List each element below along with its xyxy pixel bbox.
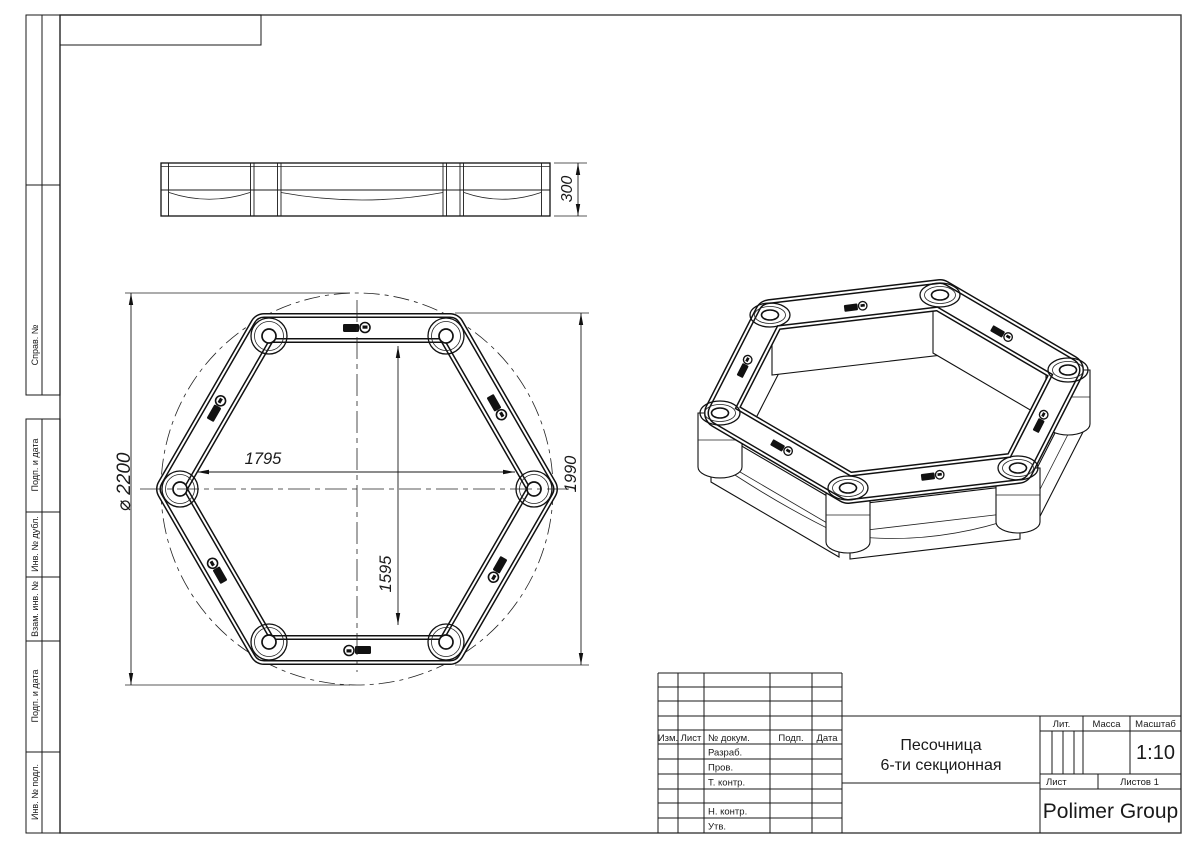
- col-list: Лист: [681, 733, 702, 744]
- drawing-canvas: Справ. № Подп. и дата Инв. № дубл. Взам.…: [0, 0, 1200, 849]
- dim-diameter-label: ⌀ 2200: [114, 452, 135, 511]
- part-title-line2: 6-ти секционная: [880, 757, 1001, 774]
- row-razrab: Разраб.: [708, 748, 742, 759]
- row-nkontr: Н. контр.: [708, 807, 747, 818]
- massa-header: Масса: [1092, 719, 1121, 730]
- section-seam-curve: [169, 193, 250, 200]
- margin-label-sprav: Справ. №: [30, 324, 40, 365]
- section-seam-curve: [281, 193, 443, 201]
- dim-inner-width: 1795: [197, 450, 515, 474]
- margin-box-vzam-inv: Взам. инв. №: [26, 577, 60, 641]
- dim-inner-width-label: 1795: [245, 450, 283, 468]
- col-docnum: № докум.: [708, 733, 750, 744]
- section-seam-curve: [464, 193, 541, 200]
- margin-box-inv-podl: Инв. № подл.: [26, 752, 60, 833]
- drawing-sheet: Справ. № Подп. и дата Инв. № дубл. Взам.…: [0, 0, 1200, 849]
- margin-label-inv-podl: Инв. № подл.: [30, 764, 40, 820]
- col-izm: Изм.: [658, 733, 678, 744]
- masshtab-header: Масштаб: [1135, 719, 1176, 730]
- col-podp: Подп.: [778, 733, 803, 744]
- listov-label: Листов 1: [1120, 777, 1159, 788]
- margin-label-podp-data-top: Подп. и дата: [30, 438, 40, 491]
- docnum-box: [60, 15, 261, 45]
- title-block: Изм. Лист № докум. Подп. Дата Разраб. Пр…: [658, 673, 1181, 833]
- dim-height-label: 300: [559, 176, 576, 203]
- margin-box-inv-dubl: Инв. № дубл.: [26, 512, 60, 577]
- dim-inner-height: 1595: [377, 346, 400, 625]
- margin-box-sprav: Справ. №: [26, 185, 60, 395]
- row-prov: Пров.: [708, 763, 733, 774]
- dim-inner-height-label: 1595: [377, 555, 395, 593]
- margin-label-podp-data-bottom: Подп. и дата: [30, 669, 40, 722]
- lit-header: Лит.: [1053, 719, 1070, 730]
- margin-label-inv-dubl: Инв. № дубл.: [30, 516, 40, 572]
- margin-box-podp-data-top: Подп. и дата: [26, 419, 60, 512]
- row-tkontr: Т. контр.: [708, 778, 745, 789]
- dim-outer-height-label: 1990: [562, 455, 580, 493]
- part-title-line1: Песочница: [900, 737, 981, 754]
- iso-view: [698, 283, 1090, 559]
- side-view: 300: [161, 163, 587, 216]
- margin-box-blank: [26, 15, 60, 185]
- top-view: ⌀ 2200 1795 1595 1990: [114, 293, 589, 685]
- margin-box-podp-data-bottom: Подп. и дата: [26, 641, 60, 752]
- company-name: Polimer Group: [1043, 800, 1178, 823]
- dim-300: 300: [554, 163, 587, 216]
- list-label: Лист: [1046, 777, 1067, 788]
- col-data: Дата: [816, 733, 838, 744]
- row-utv: Утв.: [708, 822, 726, 833]
- margin-label-vzam-inv: Взам. инв. №: [30, 581, 40, 637]
- margin-strip: Справ. № Подп. и дата Инв. № дубл. Взам.…: [26, 15, 60, 833]
- sheet-frame: [60, 15, 1181, 833]
- scale-value: 1:10: [1136, 742, 1175, 764]
